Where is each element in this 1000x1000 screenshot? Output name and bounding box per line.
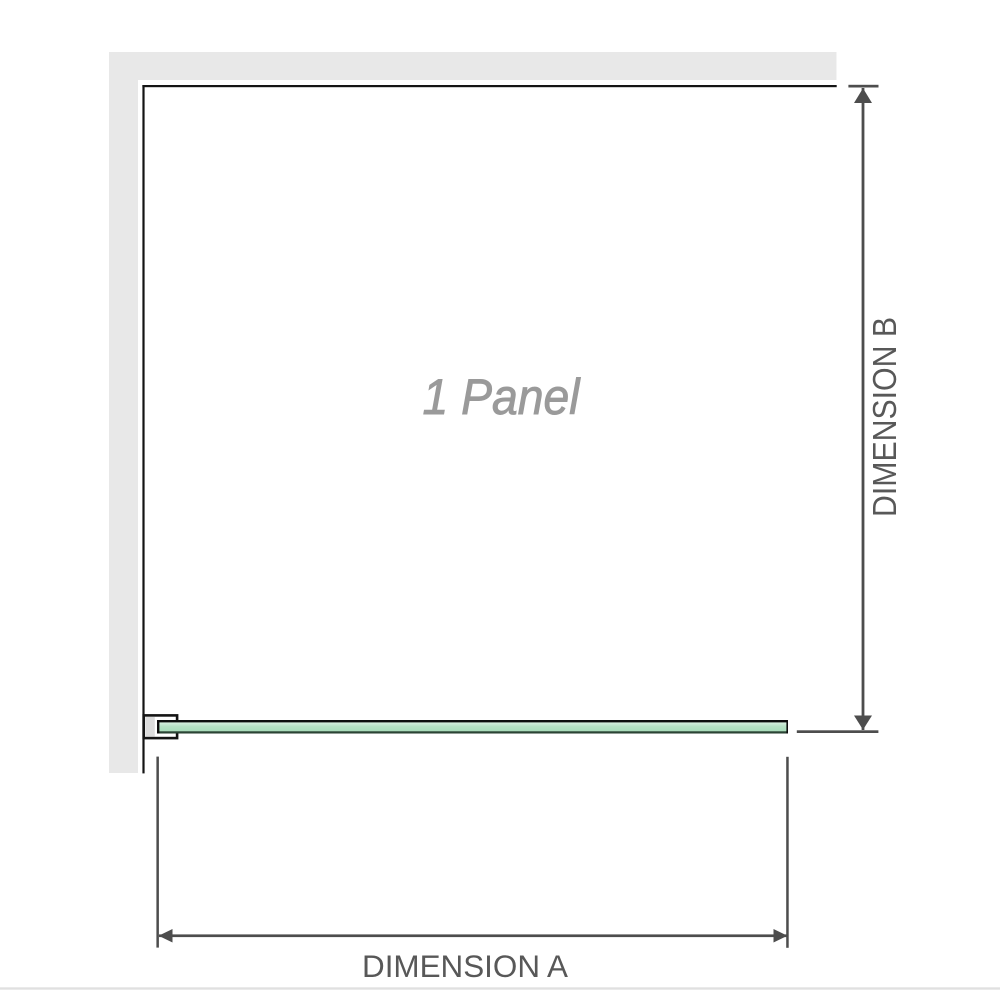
svg-text:DIMENSION A: DIMENSION A bbox=[362, 949, 568, 984]
svg-text:DIMENSION B: DIMENSION B bbox=[867, 317, 904, 517]
svg-text:1 Panel: 1 Panel bbox=[423, 369, 582, 425]
